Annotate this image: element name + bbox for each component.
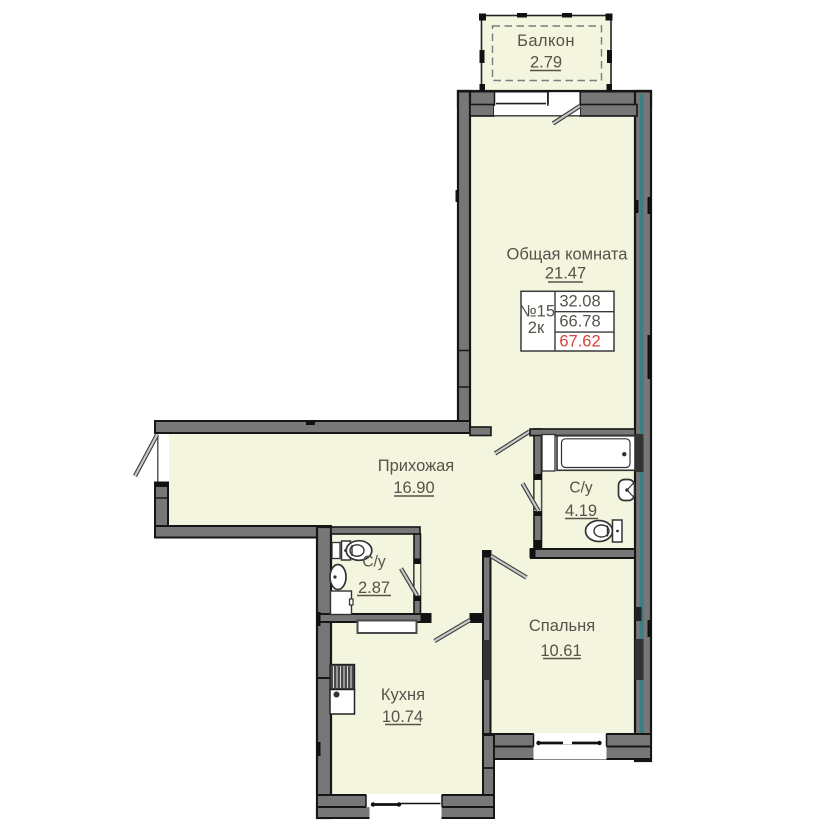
svg-text:10.61: 10.61: [540, 642, 581, 660]
svg-text:21.47: 21.47: [545, 265, 586, 283]
svg-text:10.74: 10.74: [382, 708, 423, 726]
svg-text:Балкон: Балкон: [517, 32, 575, 50]
svg-text:С/у: С/у: [569, 480, 593, 497]
svg-text:Спальня: Спальня: [529, 617, 595, 635]
svg-text:32.08: 32.08: [559, 293, 600, 311]
svg-text:Общая комната: Общая комната: [507, 246, 629, 264]
svg-text:4.19: 4.19: [565, 502, 597, 520]
svg-text:2.79: 2.79: [530, 54, 562, 72]
svg-text:Прихожая: Прихожая: [378, 457, 454, 475]
svg-text:№15: №15: [519, 303, 555, 321]
svg-text:2.87: 2.87: [358, 579, 390, 597]
svg-text:66.78: 66.78: [559, 313, 600, 331]
svg-text:16.90: 16.90: [393, 479, 434, 497]
svg-text:2к: 2к: [528, 319, 545, 337]
svg-text:Кухня: Кухня: [381, 686, 425, 704]
svg-text:С/у: С/у: [362, 554, 386, 571]
svg-text:67.62: 67.62: [559, 333, 600, 351]
